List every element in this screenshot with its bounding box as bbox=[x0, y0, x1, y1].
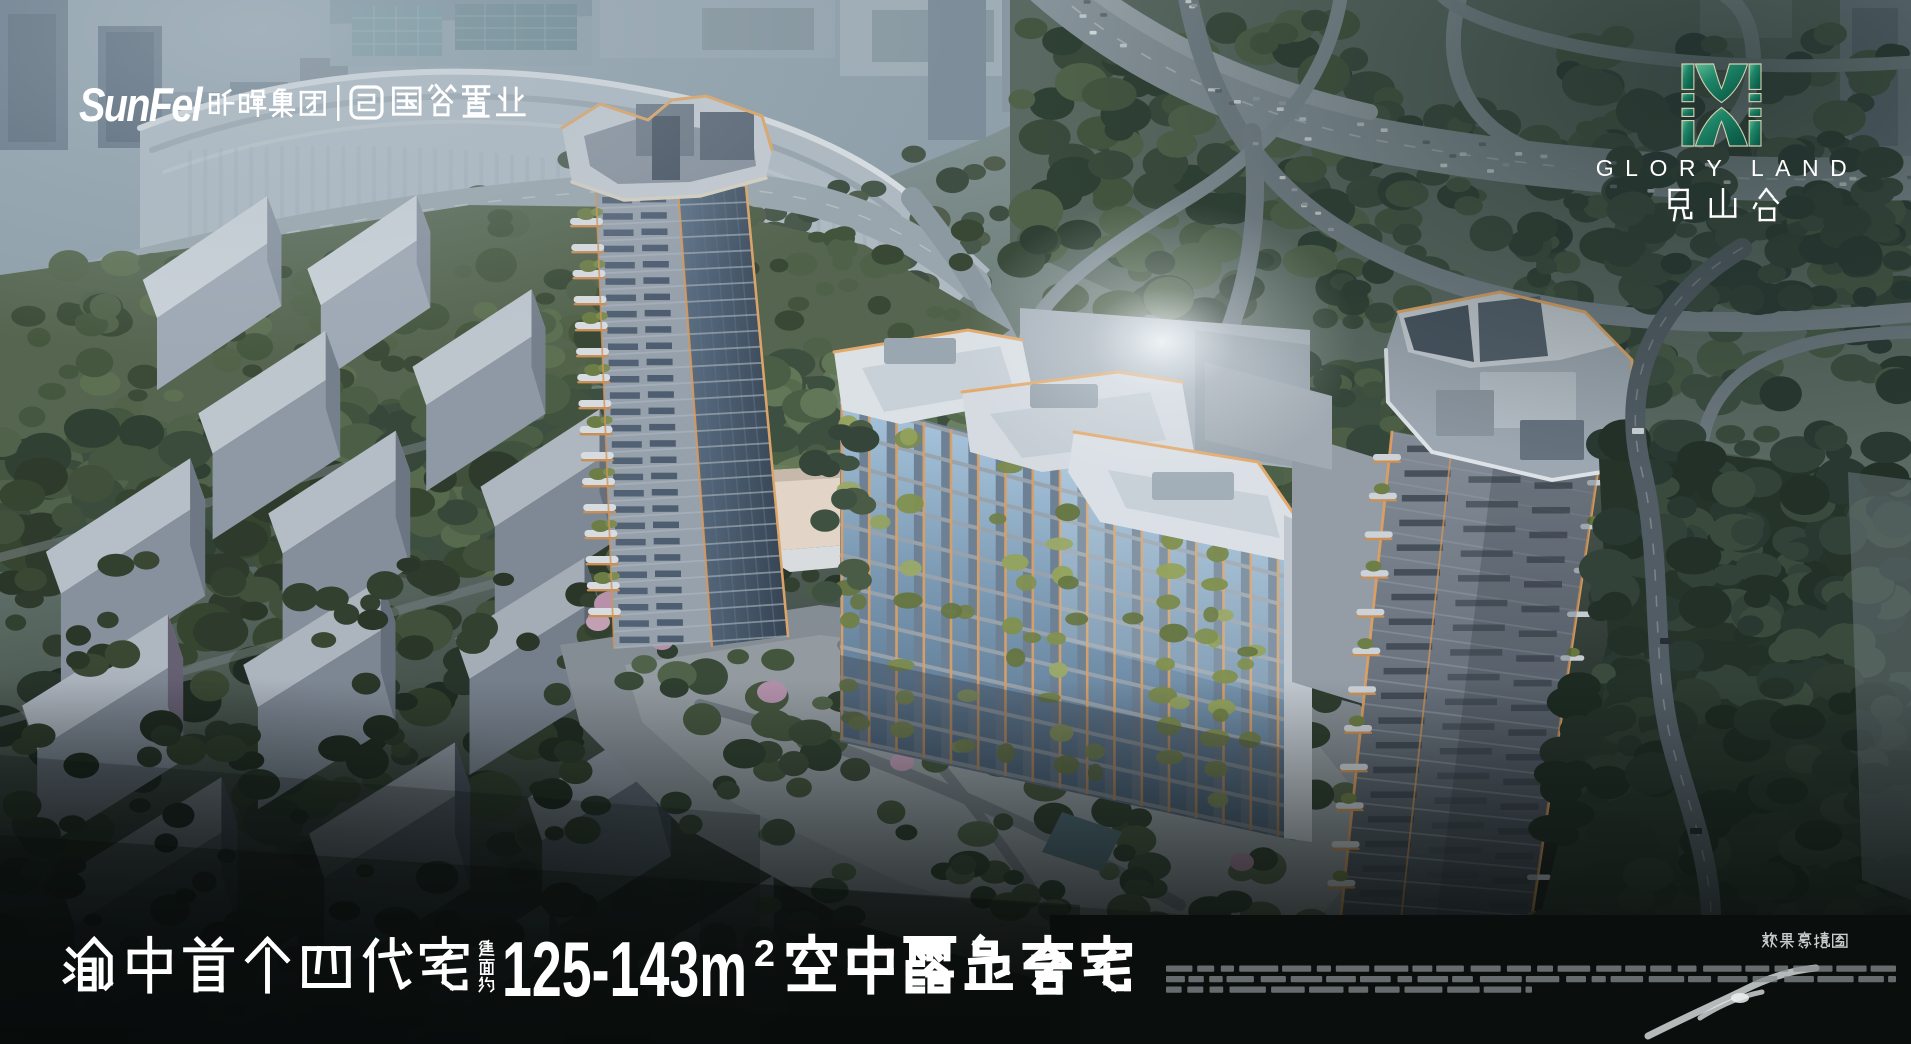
svg-text:SunFel: SunFel bbox=[79, 78, 203, 131]
svg-text:GLORY LAND: GLORY LAND bbox=[1596, 155, 1858, 181]
svg-text:2: 2 bbox=[754, 933, 775, 974]
svg-text:125-143m: 125-143m bbox=[502, 925, 747, 1013]
